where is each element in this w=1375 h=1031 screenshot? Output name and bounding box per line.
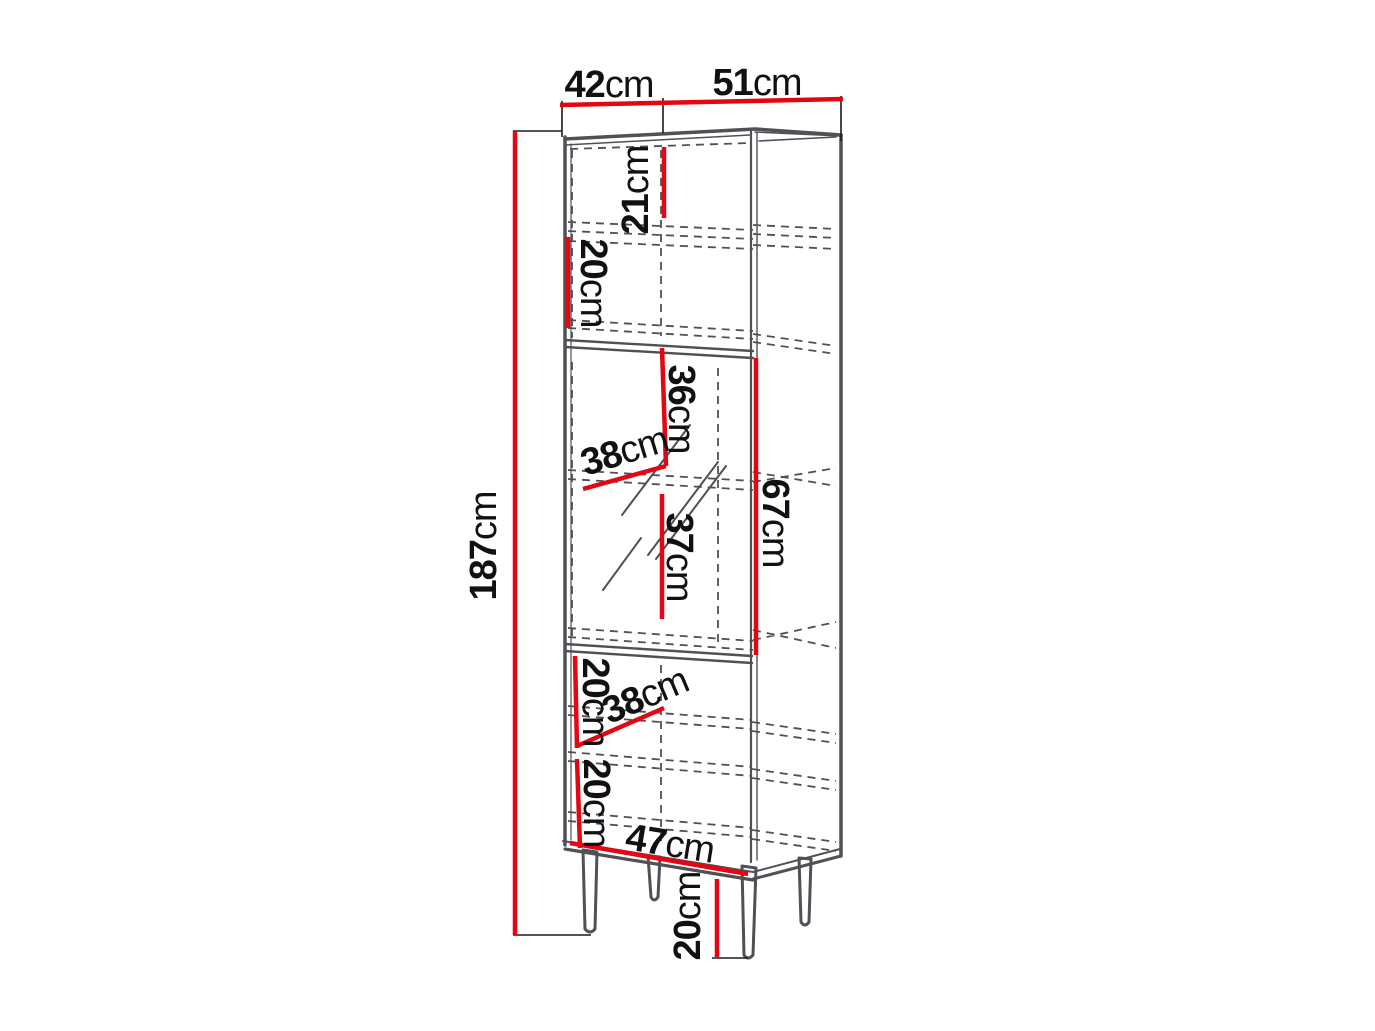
dim-label-top-shelf-spacing: 20cm	[572, 239, 614, 328]
dim-label-leg-height: 20cm	[667, 872, 709, 961]
divider-upper	[565, 340, 753, 358]
dim-label-bottom-lower: 20cm	[575, 759, 617, 848]
dim-label-depth: 42cm	[565, 64, 654, 106]
dim-label-width: 51cm	[713, 62, 802, 104]
dim-label-glass-lower: 37cm	[658, 513, 700, 602]
dim-label-top-opening: 21cm	[615, 146, 657, 235]
dim-label-glass-section: 67cm	[754, 479, 796, 568]
leg-front-left	[583, 850, 597, 932]
dim-label-total-height: 187cm	[463, 491, 505, 600]
furniture-dimension-diagram: 42cm 51cm 187cm 21cm 20cm 36cm 38cm 37cm…	[0, 0, 1375, 1031]
dim-label-interior-width: 47cm	[623, 816, 717, 871]
